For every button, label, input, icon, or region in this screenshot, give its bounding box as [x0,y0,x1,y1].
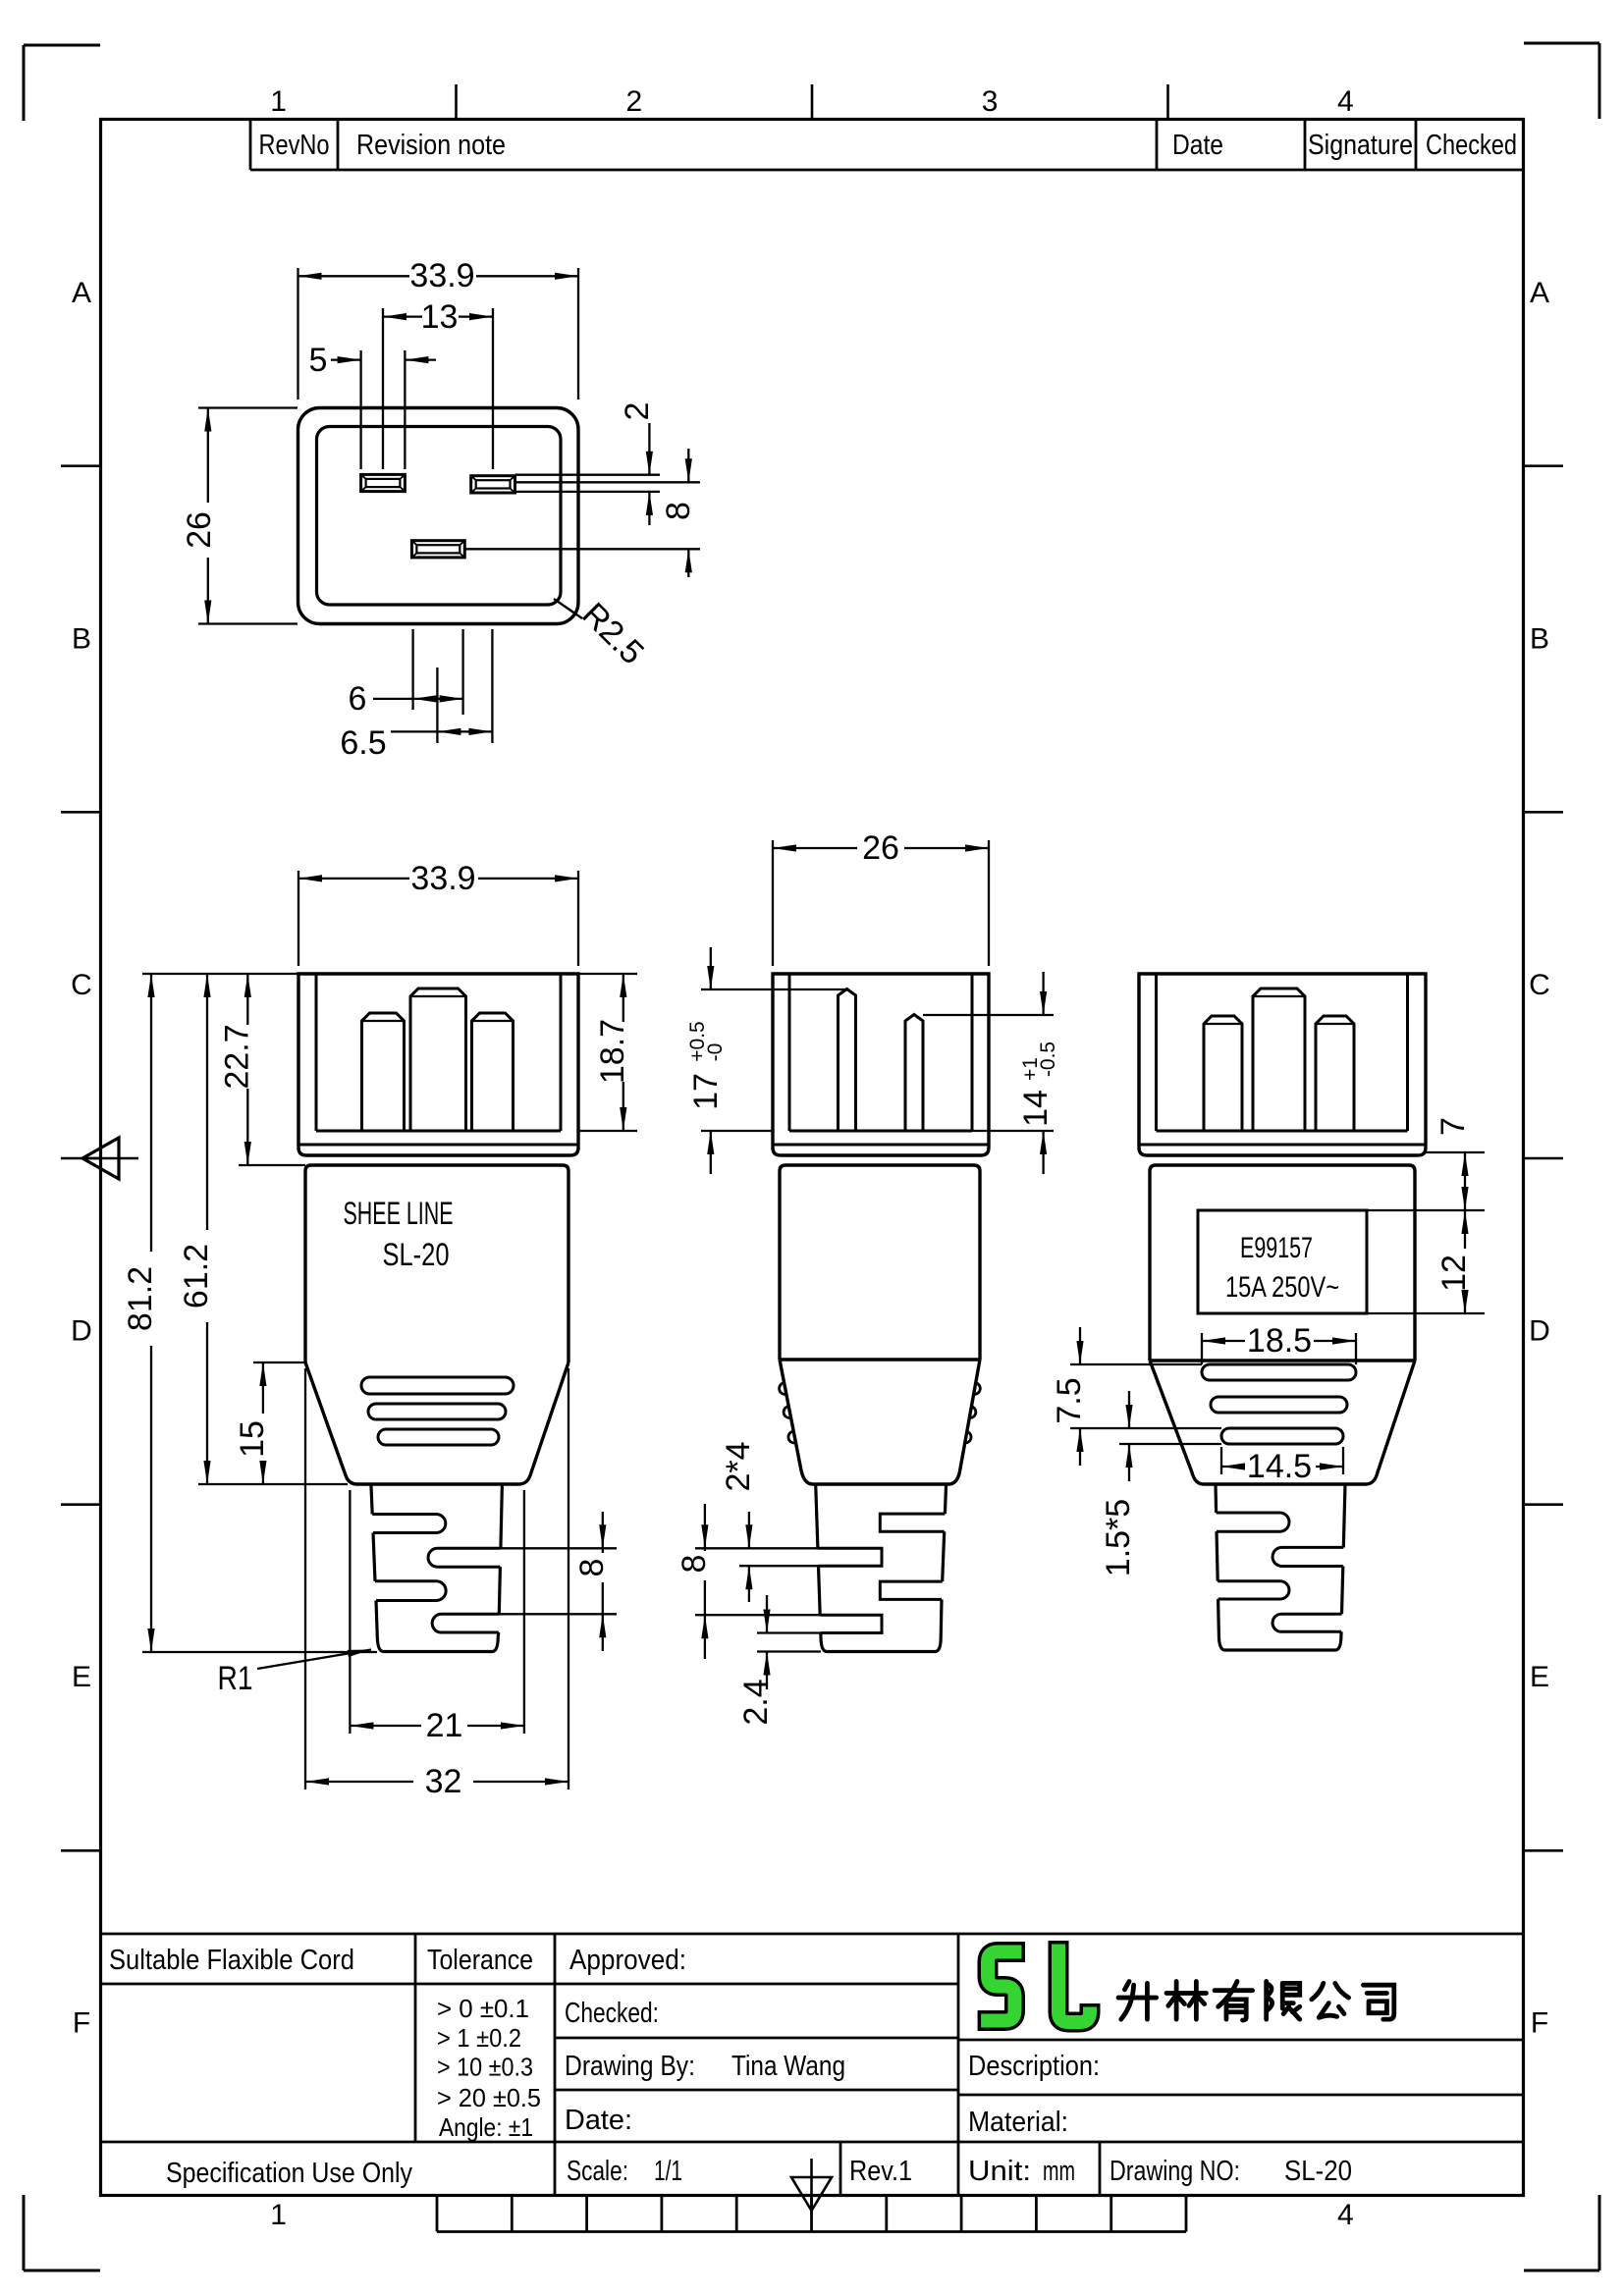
svg-text:E: E [72,1661,91,1693]
svg-text:Date: Date [1172,130,1223,161]
svg-text:3: 3 [982,85,999,118]
svg-text:Sultable Flaxible Cord: Sultable Flaxible Cord [109,1945,354,1976]
svg-text:12: 12 [1435,1255,1473,1292]
svg-text:2.4: 2.4 [737,1679,775,1725]
svg-text:SHEE LINE: SHEE LINE [344,1196,454,1231]
svg-text:22.7: 22.7 [218,1024,255,1089]
svg-text:26: 26 [181,511,218,549]
svg-text:15: 15 [234,1420,271,1458]
svg-text:8: 8 [676,1555,713,1574]
svg-text:SL-20: SL-20 [383,1237,450,1272]
svg-text:1: 1 [270,2199,287,2231]
svg-text:-0.5: -0.5 [1037,1041,1059,1077]
svg-text:> 20 ±0.5: > 20 ±0.5 [437,2083,541,2112]
svg-text:Signature: Signature [1308,130,1413,161]
svg-text:> 1 ±0.2: > 1 ±0.2 [437,2023,521,2053]
svg-text:33.9: 33.9 [410,860,475,897]
svg-text:2: 2 [626,85,643,118]
svg-text:SL-20: SL-20 [1284,2156,1352,2187]
svg-text:81.2: 81.2 [122,1266,159,1331]
svg-text:Material:: Material: [968,2107,1068,2138]
svg-text:7.5: 7.5 [1051,1377,1088,1423]
svg-text:6.5: 6.5 [340,724,386,762]
svg-text:7: 7 [1435,1117,1472,1136]
svg-text:32: 32 [425,1763,462,1800]
svg-text:B: B [1530,622,1549,655]
svg-text:2: 2 [619,402,656,421]
svg-text:8: 8 [660,502,697,520]
svg-text:mm: mm [1043,2156,1075,2187]
svg-text:D: D [1529,1314,1550,1347]
svg-text:Tina Wang: Tina Wang [731,2051,845,2082]
svg-text:Description:: Description: [968,2051,1100,2082]
svg-text:17: 17 [687,1073,725,1110]
svg-text:A: A [1530,277,1549,309]
svg-text:RevNo: RevNo [259,130,330,161]
svg-text:Checked: Checked [1426,130,1517,161]
svg-text:4: 4 [1337,2199,1354,2231]
svg-text:8: 8 [573,1559,611,1577]
svg-text:Tolerance: Tolerance [427,1945,533,1976]
svg-text:D: D [71,1314,92,1347]
svg-text:Approved:: Approved: [569,1945,686,1976]
svg-text:Checked:: Checked: [565,1998,659,2029]
svg-text:Drawing By:: Drawing By: [565,2051,695,2082]
svg-text:18.5: 18.5 [1247,1322,1312,1360]
svg-text:F: F [73,2006,90,2039]
svg-text:> 0 ±0.1: > 0 ±0.1 [437,1994,529,2023]
svg-text:61.2: 61.2 [178,1244,215,1308]
svg-text:Angle: ±1: Angle: ±1 [439,2112,533,2142]
svg-text:33.9: 33.9 [409,257,474,294]
svg-text:15A 250V~: 15A 250V~ [1225,1271,1339,1304]
svg-text:2*4: 2*4 [720,1441,757,1491]
svg-text:14: 14 [1017,1090,1055,1127]
svg-text:Drawing NO:: Drawing NO: [1110,2156,1240,2187]
svg-text:Specification Use Only: Specification Use Only [166,2158,412,2189]
svg-text:1: 1 [270,85,287,118]
svg-text:5: 5 [309,342,328,379]
svg-text:4: 4 [1337,85,1354,118]
svg-text:C: C [71,969,92,1001]
svg-text:Scale:: Scale: [567,2156,628,2187]
svg-text:C: C [1529,969,1550,1001]
svg-text:A: A [72,277,91,309]
svg-text:E: E [1530,1661,1549,1693]
svg-text:> 10 ±0.3: > 10 ±0.3 [437,2053,533,2082]
svg-text:R1: R1 [218,1660,253,1697]
svg-text:B: B [72,622,91,655]
svg-text:18.7: 18.7 [594,1019,631,1084]
svg-text:Date:: Date: [565,2105,632,2136]
svg-text:26: 26 [862,829,899,867]
svg-text:Unit:: Unit: [968,2156,1031,2187]
svg-text:21: 21 [426,1707,463,1744]
svg-text:-0: -0 [704,1043,727,1062]
svg-text:Rev.1: Rev.1 [849,2156,912,2187]
svg-text:1.5*5: 1.5*5 [1100,1499,1137,1576]
svg-text:1/1: 1/1 [654,2156,682,2187]
svg-text:14.5: 14.5 [1247,1448,1312,1485]
svg-text:6: 6 [349,680,367,718]
svg-text:13: 13 [421,298,459,336]
svg-text:F: F [1531,2006,1548,2039]
svg-text:Revision note: Revision note [356,130,506,161]
svg-text:E99157: E99157 [1240,1232,1313,1264]
